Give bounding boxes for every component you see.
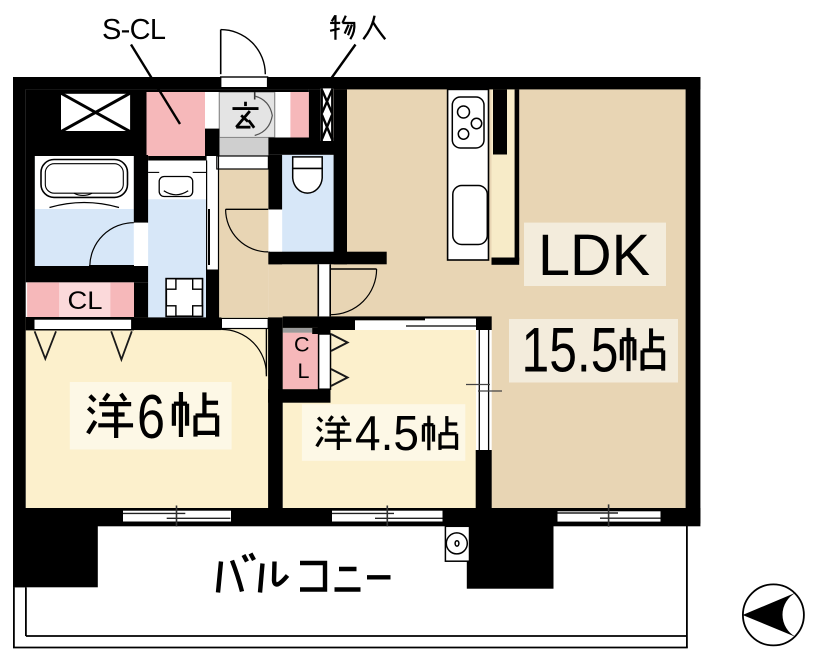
- svg-text:6: 6: [137, 383, 165, 452]
- svg-text:C: C: [294, 333, 310, 357]
- svg-text:15.5: 15.5: [522, 316, 619, 386]
- svg-text:S-CL: S-CL: [102, 14, 166, 46]
- svg-text:L: L: [298, 359, 310, 383]
- svg-text:4.5: 4.5: [355, 407, 419, 461]
- svg-text:LDK: LDK: [538, 223, 650, 288]
- svg-text:CL: CL: [68, 287, 103, 315]
